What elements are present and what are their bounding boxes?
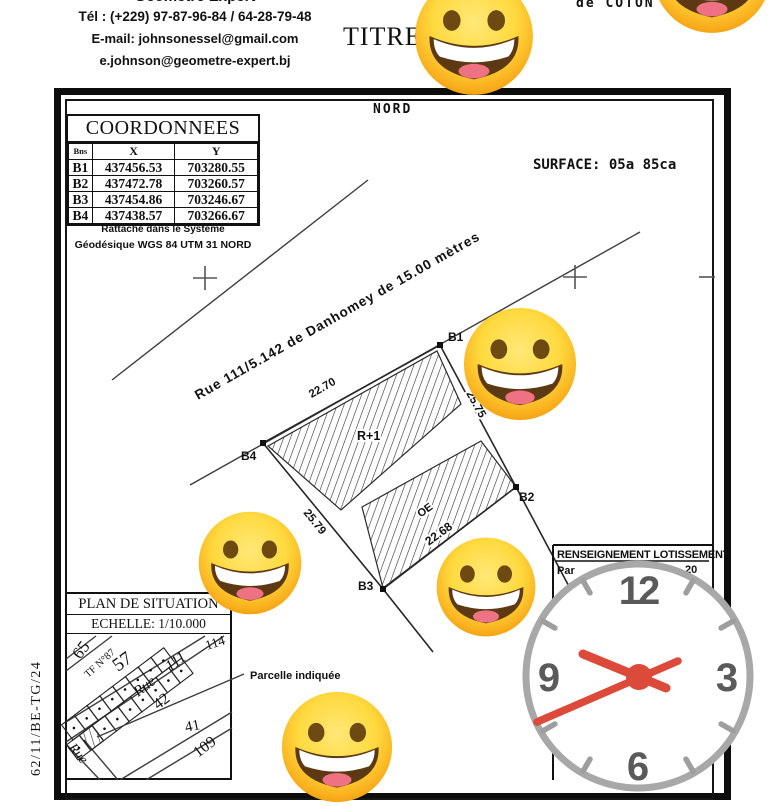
firm-name-cut: Géomètre Expert: [30, 0, 360, 5]
table-row: B2 437472.78 703260.57: [69, 176, 258, 192]
cell-borne: B3: [69, 192, 93, 208]
col-x: X: [92, 144, 175, 160]
emoji-sticker-top: [412, 0, 536, 98]
surface-label: SURFACE: 05a 85ca: [533, 157, 676, 173]
coordinates-panel: COORDONNEES Bns X Y B1 437456.53 703280.…: [66, 114, 260, 226]
situation-scale: ECHELLE: 1/10.000: [67, 615, 230, 634]
cell-y: 703280.55: [175, 160, 258, 176]
cell-borne: B1: [69, 160, 93, 176]
col-bns: Bns: [69, 144, 93, 160]
header-email-secondary: e.johnson@geometre-expert.bj: [30, 53, 360, 68]
table-row: B3 437454.86 703246.67: [69, 192, 258, 208]
north-label: NORD: [373, 102, 412, 117]
top-right-fragment: de COTON: [576, 0, 655, 11]
situation-title: PLAN DE SITUATION: [67, 594, 230, 615]
header-phone: Tél : (+229) 97-87-96-84 / 64-28-79-48: [30, 9, 360, 24]
datum-line-2: Géodésique WGS 84 UTM 31 NORD: [60, 239, 266, 251]
cell-x: 437438.57: [92, 208, 175, 224]
table-header-row: Bns X Y: [69, 144, 258, 160]
cell-x: 437454.86: [92, 192, 175, 208]
col-y: Y: [175, 144, 258, 160]
cell-x: 437456.53: [92, 160, 175, 176]
cell-y: 703246.67: [175, 192, 258, 208]
coordinates-table: Bns X Y B1 437456.53 703280.55 B2 437472…: [68, 143, 258, 224]
coordinates-title: COORDONNEES: [68, 116, 258, 143]
title-fragment: TITRE: [343, 22, 422, 52]
situation-panel: PLAN DE SITUATION ECHELLE: 1/10.000: [65, 592, 232, 780]
cell-borne: B2: [69, 176, 93, 192]
table-row: B1 437456.53 703280.55: [69, 160, 258, 176]
header-email-primary: E-mail: johnsonessel@gmail.com: [30, 31, 360, 46]
emoji-sticker-top-right: [650, 0, 774, 36]
cell-borne: B4: [69, 208, 93, 224]
cell-x: 437472.78: [92, 176, 175, 192]
cell-y: 703260.57: [175, 176, 258, 192]
file-reference: 62/11/BE-TG/24: [29, 661, 44, 776]
table-row: B4 437438.57 703266.67: [69, 208, 258, 224]
datum-line-1: Rattaché dans le Système: [66, 224, 260, 235]
cell-y: 703266.67: [175, 208, 258, 224]
